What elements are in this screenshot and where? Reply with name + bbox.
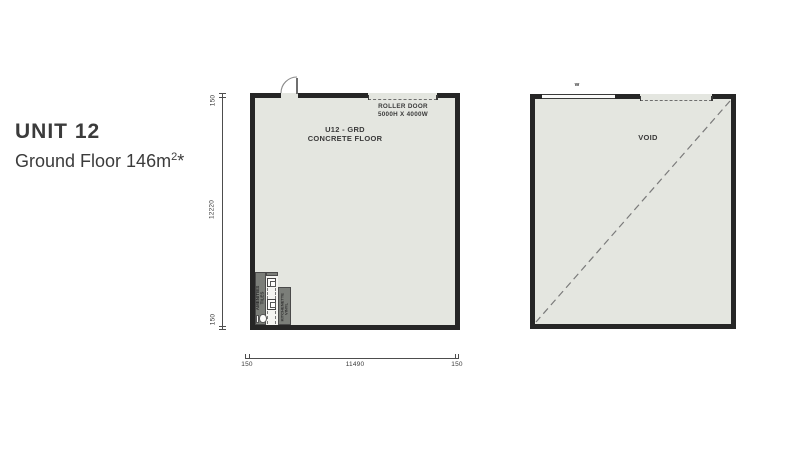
- bench-dashed-outline: [267, 288, 276, 299]
- page-subtitle: Ground Floor 146m2*: [15, 151, 184, 172]
- sink-icon: [267, 299, 276, 310]
- page-title: UNIT 12: [15, 120, 100, 144]
- wall-bottom: [250, 325, 460, 330]
- kitchenette-label: KITCHENETTE VINYL: [280, 297, 288, 322]
- ground-floor-plan: ROLLER DOOR 5000H X 4000W U12 - GRD CONC…: [250, 93, 460, 330]
- opening-tick: [436, 95, 438, 100]
- dimension-tick: [219, 93, 226, 94]
- sink-icon: [267, 278, 276, 288]
- roller-door-opening-icon: [368, 99, 437, 100]
- sink-basin: [270, 302, 276, 308]
- dimension-value: 150: [210, 83, 217, 119]
- amenities-wall-cap: [266, 272, 279, 276]
- dimension-tick: [219, 326, 226, 327]
- wall-right: [455, 93, 460, 330]
- dimension-line-vertical: [222, 93, 223, 330]
- dimension-tick: [249, 354, 250, 359]
- void-diagonal-icon: [530, 94, 736, 329]
- dimension-tick: [219, 329, 226, 330]
- void-label: VOID: [608, 133, 688, 142]
- dimension-tick: [458, 354, 459, 359]
- dimension-line-horizontal: [245, 358, 458, 359]
- wall-top-segment: [437, 93, 460, 98]
- wall-top-segment: [250, 93, 281, 98]
- sink-basin: [270, 281, 276, 287]
- dimension-value: 12220: [209, 192, 216, 228]
- void-level-plan: W VOID: [530, 94, 736, 329]
- subtitle-text: Ground Floor 146m: [15, 151, 171, 171]
- amenities-label: AMENITIES TILES: [256, 286, 265, 311]
- floorplan-page: UNIT 12 Ground Floor 146m2* ROLLER DOOR …: [0, 0, 800, 461]
- door-swing-arc-icon: [281, 77, 297, 93]
- dimension-tick: [245, 354, 246, 359]
- bench-dashed-outline: [267, 311, 276, 324]
- opening-tick: [368, 95, 370, 100]
- window-label: W: [566, 82, 588, 87]
- roller-door-label: ROLLER DOOR 5000H X 4000W: [357, 103, 449, 119]
- toilet-bowl-icon: [259, 314, 266, 323]
- dimension-value: 150: [237, 361, 257, 368]
- dimension-value: 150: [447, 361, 467, 368]
- room-label: U12 - GRD CONCRETE FLOOR: [295, 125, 395, 143]
- dimension-tick: [455, 354, 456, 359]
- dimension-tick: [219, 97, 226, 98]
- wall-top-segment: [298, 93, 368, 98]
- dimension-value: 11490: [330, 361, 380, 368]
- subtitle-asterisk: *: [177, 151, 184, 171]
- dimension-value: 150: [210, 302, 217, 338]
